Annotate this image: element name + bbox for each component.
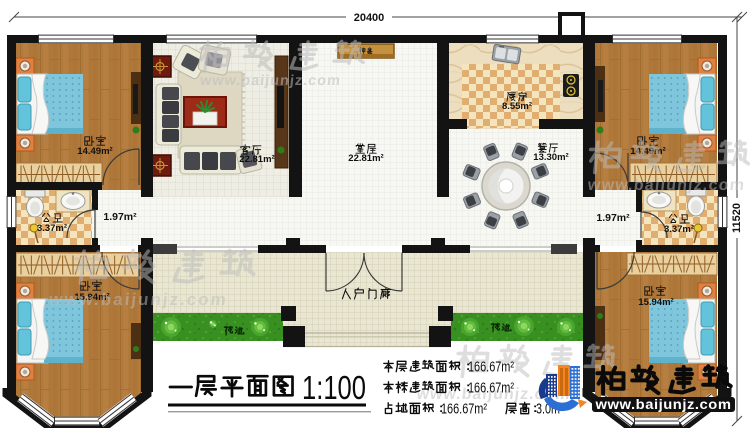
svg-text:14.49m²: 14.49m² — [77, 146, 112, 157]
svg-text:3.37m²: 3.37m² — [664, 224, 694, 235]
svg-text:166.67m²: 166.67m² — [468, 360, 514, 376]
svg-text:www.baijunjz.com: www.baijunjz.com — [47, 290, 229, 309]
svg-text:www.baijunjz.com: www.baijunjz.com — [594, 397, 731, 412]
svg-text:www.baijunjz.com: www.baijunjz.com — [198, 73, 342, 89]
svg-text:22.81m²: 22.81m² — [239, 154, 274, 165]
svg-text:1.97m²: 1.97m² — [596, 212, 630, 224]
svg-text:20400: 20400 — [354, 12, 385, 24]
svg-text:15.94m²: 15.94m² — [638, 297, 673, 308]
svg-text:www.baijunjz.com: www.baijunjz.com — [586, 176, 746, 194]
svg-text:11520: 11520 — [731, 203, 743, 233]
svg-text:1:100: 1:100 — [302, 369, 366, 406]
svg-text:13.30m²: 13.30m² — [533, 152, 568, 163]
svg-text:3.37m²: 3.37m² — [37, 223, 67, 234]
svg-text:166.67m²: 166.67m² — [441, 402, 487, 418]
svg-text:8.55m²: 8.55m² — [502, 101, 532, 112]
svg-text:1.97m²: 1.97m² — [103, 211, 137, 223]
svg-text:166.67m²: 166.67m² — [468, 381, 514, 397]
svg-text:22.81m²: 22.81m² — [348, 153, 383, 164]
